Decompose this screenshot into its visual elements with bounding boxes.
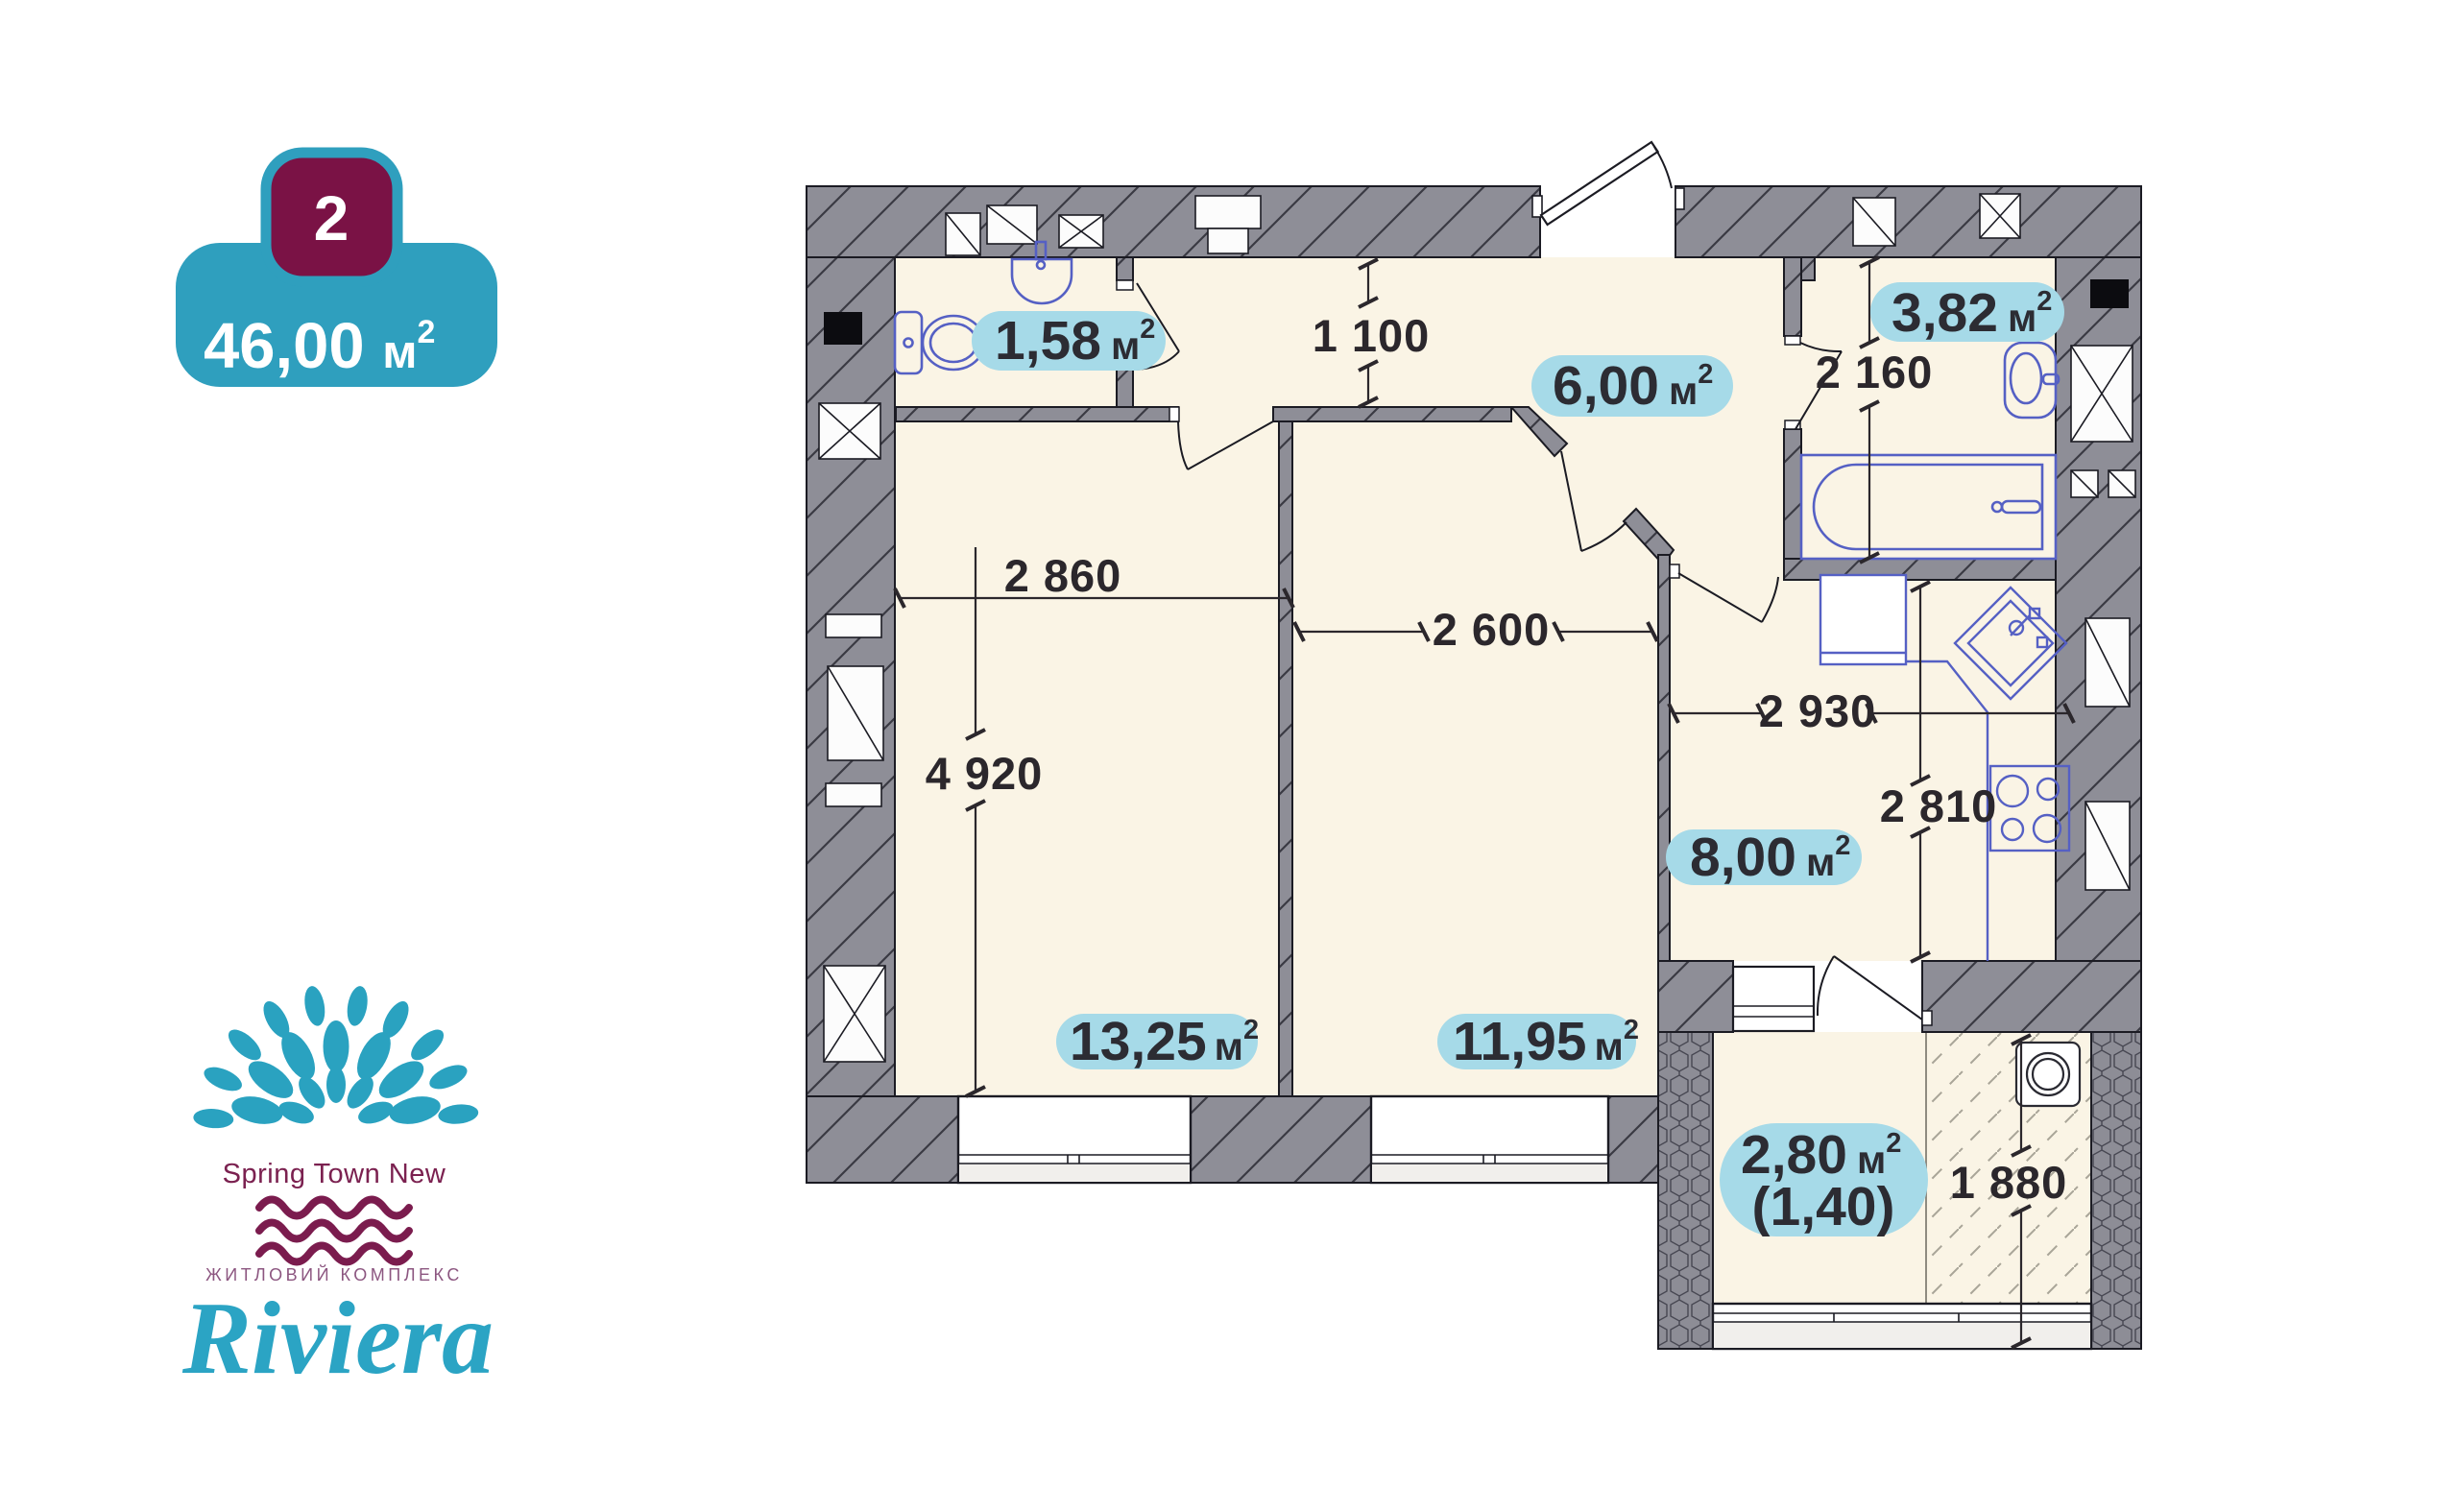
- svg-text:1 880: 1 880: [1950, 1157, 2068, 1208]
- svg-text:2 930: 2 930: [1759, 685, 1877, 736]
- svg-text:1 100: 1 100: [1313, 310, 1431, 361]
- svg-text:2: 2: [314, 182, 349, 253]
- svg-text:2 810: 2 810: [1880, 780, 1998, 831]
- svg-text:2 600: 2 600: [1433, 604, 1551, 655]
- svg-text:Riviera: Riviera: [181, 1282, 494, 1396]
- svg-text:4 920: 4 920: [926, 748, 1044, 799]
- svg-text:2 860: 2 860: [1004, 550, 1122, 601]
- svg-text:(1,40): (1,40): [1752, 1176, 1895, 1237]
- svg-text:Spring Town New: Spring Town New: [223, 1159, 446, 1189]
- svg-text:2 160: 2 160: [1816, 347, 1934, 397]
